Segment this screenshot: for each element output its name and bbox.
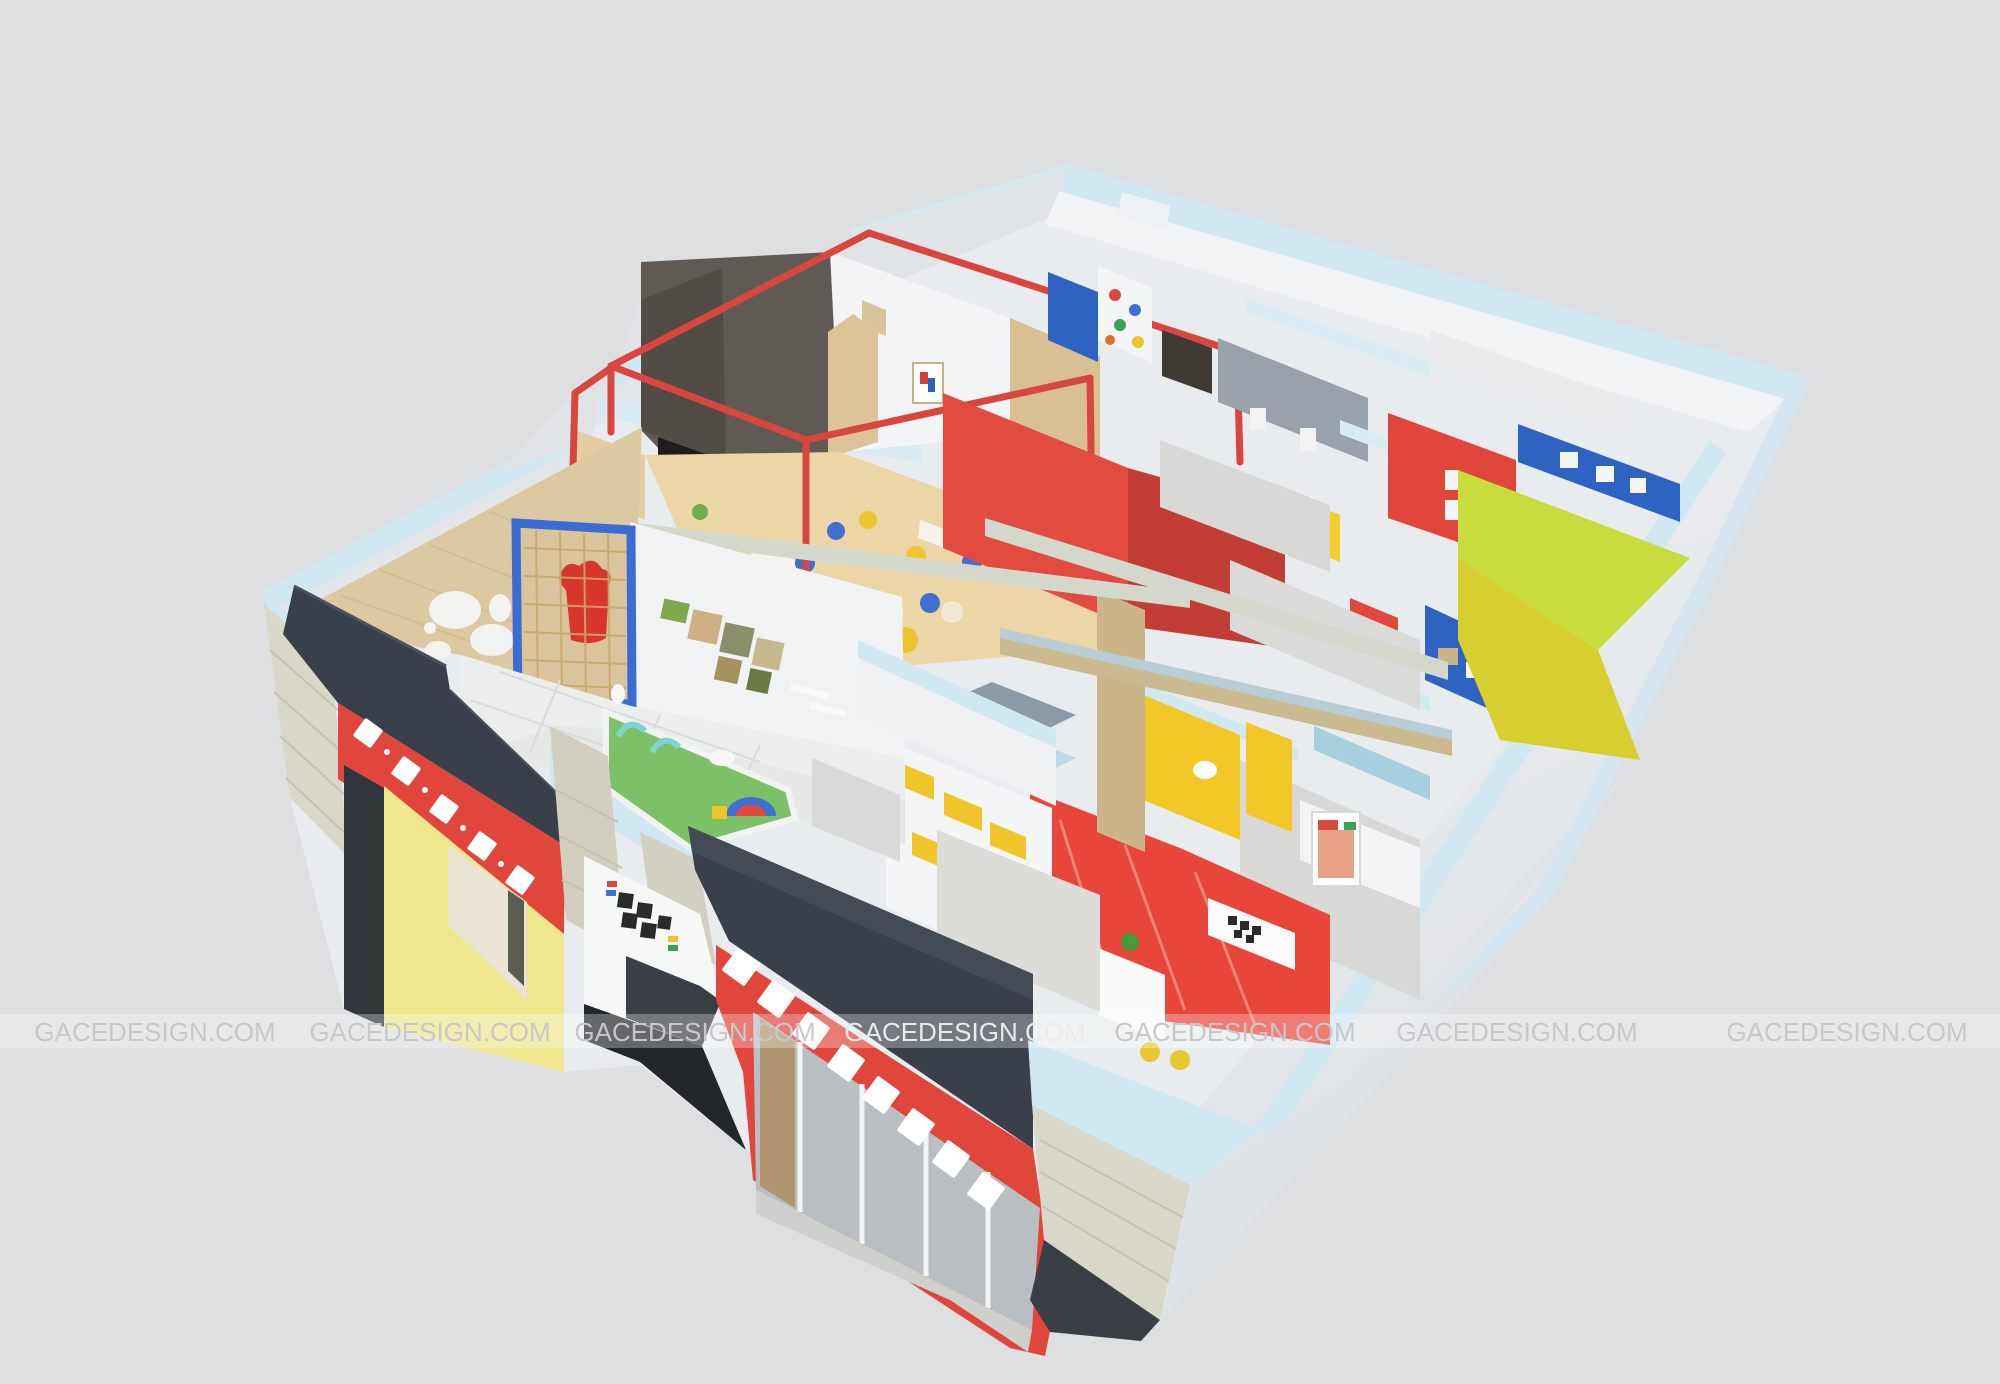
svg-text:GACEDESIGN.COM: GACEDESIGN.COM: [1396, 1017, 1637, 1047]
svg-text:GACEDESIGN.COM: GACEDESIGN.COM: [34, 1017, 275, 1047]
svg-text:GACEDESIGN.COM: GACEDESIGN.COM: [1726, 1017, 1967, 1047]
svg-text:GACEDESIGN.COM: GACEDESIGN.COM: [574, 1017, 815, 1047]
svg-text:GACEDESIGN.COM: GACEDESIGN.COM: [844, 1017, 1085, 1047]
svg-text:GACEDESIGN.COM: GACEDESIGN.COM: [309, 1017, 550, 1047]
svg-text:GACEDESIGN.COM: GACEDESIGN.COM: [1114, 1017, 1355, 1047]
